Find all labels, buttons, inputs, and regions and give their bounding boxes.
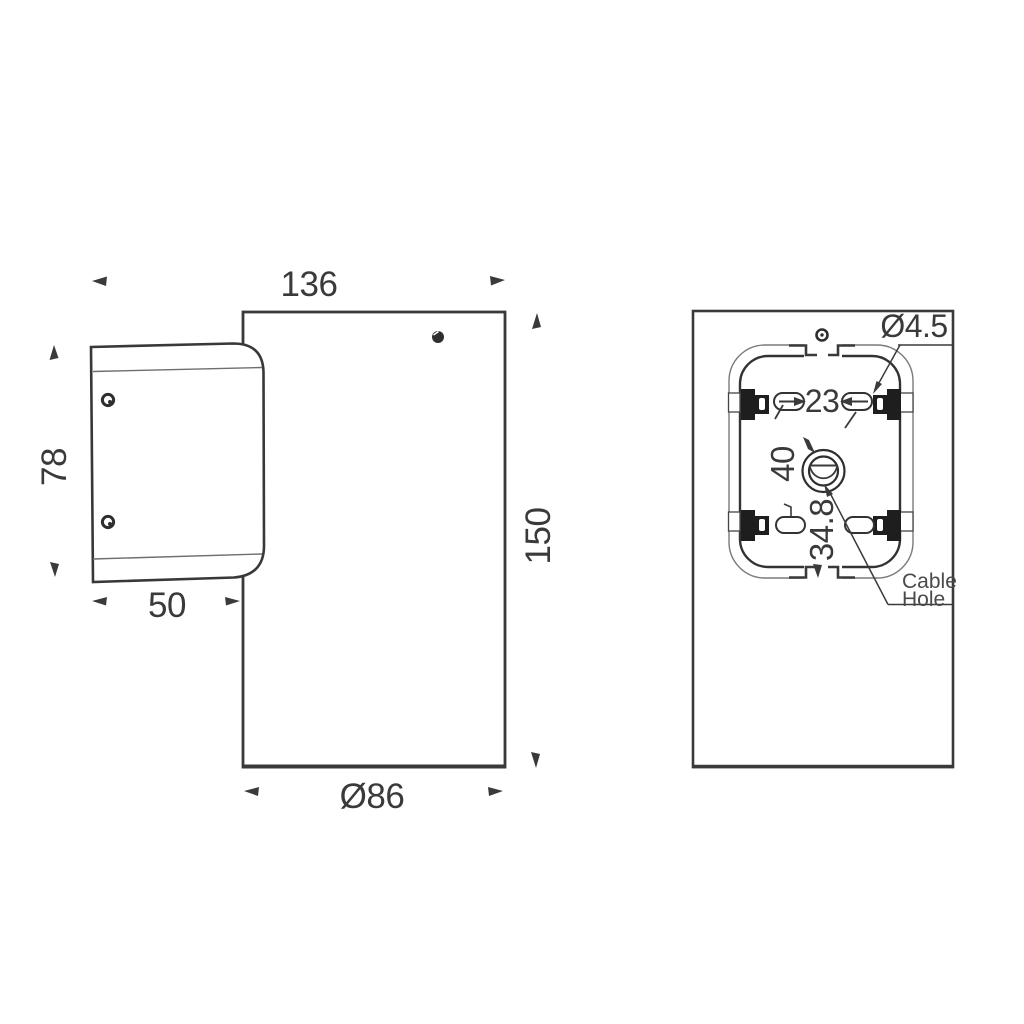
body-screw-icon	[432, 331, 444, 343]
arrow-left-icon	[244, 787, 259, 796]
mounting-bracket-outline	[91, 344, 264, 583]
arrow-down-icon	[50, 562, 59, 577]
arrow-right-icon	[490, 276, 505, 286]
dim-bracket-height: 78	[35, 345, 74, 577]
arrow-left-icon	[92, 597, 107, 606]
dim-overall-depth-label: 136	[281, 265, 338, 304]
dim-cable-hole-348-label: 34.8	[803, 499, 840, 561]
technical-drawing-canvas: 136 78 50 150 Ø86	[0, 0, 1024, 1024]
dim-slot-distance-label: 23	[805, 383, 840, 419]
arrow-up-icon	[50, 345, 59, 360]
dim-overall-depth: 136	[92, 265, 505, 304]
cable-hole-label-line2: Hole	[902, 588, 945, 611]
dim-body-diameter: Ø86	[244, 777, 503, 816]
slot-bottom-left	[776, 517, 805, 533]
drawing-page: 136 78 50 150 Ø86	[0, 0, 1024, 1024]
side-body-outline	[243, 312, 505, 767]
back-screw-icon	[817, 330, 828, 341]
bracket-screw-top-icon	[102, 394, 113, 405]
bracket-screw-bottom-icon	[102, 516, 113, 527]
arrow-left-icon	[92, 277, 107, 287]
dim-body-height: 150	[519, 313, 558, 768]
dim-body-diameter-label: Ø86	[340, 777, 405, 816]
arrow-down-icon	[531, 752, 540, 768]
arrow-right-icon	[488, 787, 503, 796]
side-view: 136 78 50 150 Ø86	[35, 265, 558, 816]
arrow-up-icon	[532, 313, 541, 329]
dim-body-height-label: 150	[519, 508, 558, 565]
dim-bracket-depth-label: 50	[148, 586, 186, 625]
dim-bracket-depth: 50	[92, 586, 240, 625]
arrow-right-icon	[225, 597, 240, 606]
dim-cable-hole-40-label: 40	[764, 446, 801, 482]
back-view: 23 Ø4.5 40 34.8 Cable Hole	[692, 308, 957, 767]
dim-bracket-height-label: 78	[35, 448, 74, 486]
dim-mounting-hole-label: Ø4.5	[880, 308, 947, 344]
